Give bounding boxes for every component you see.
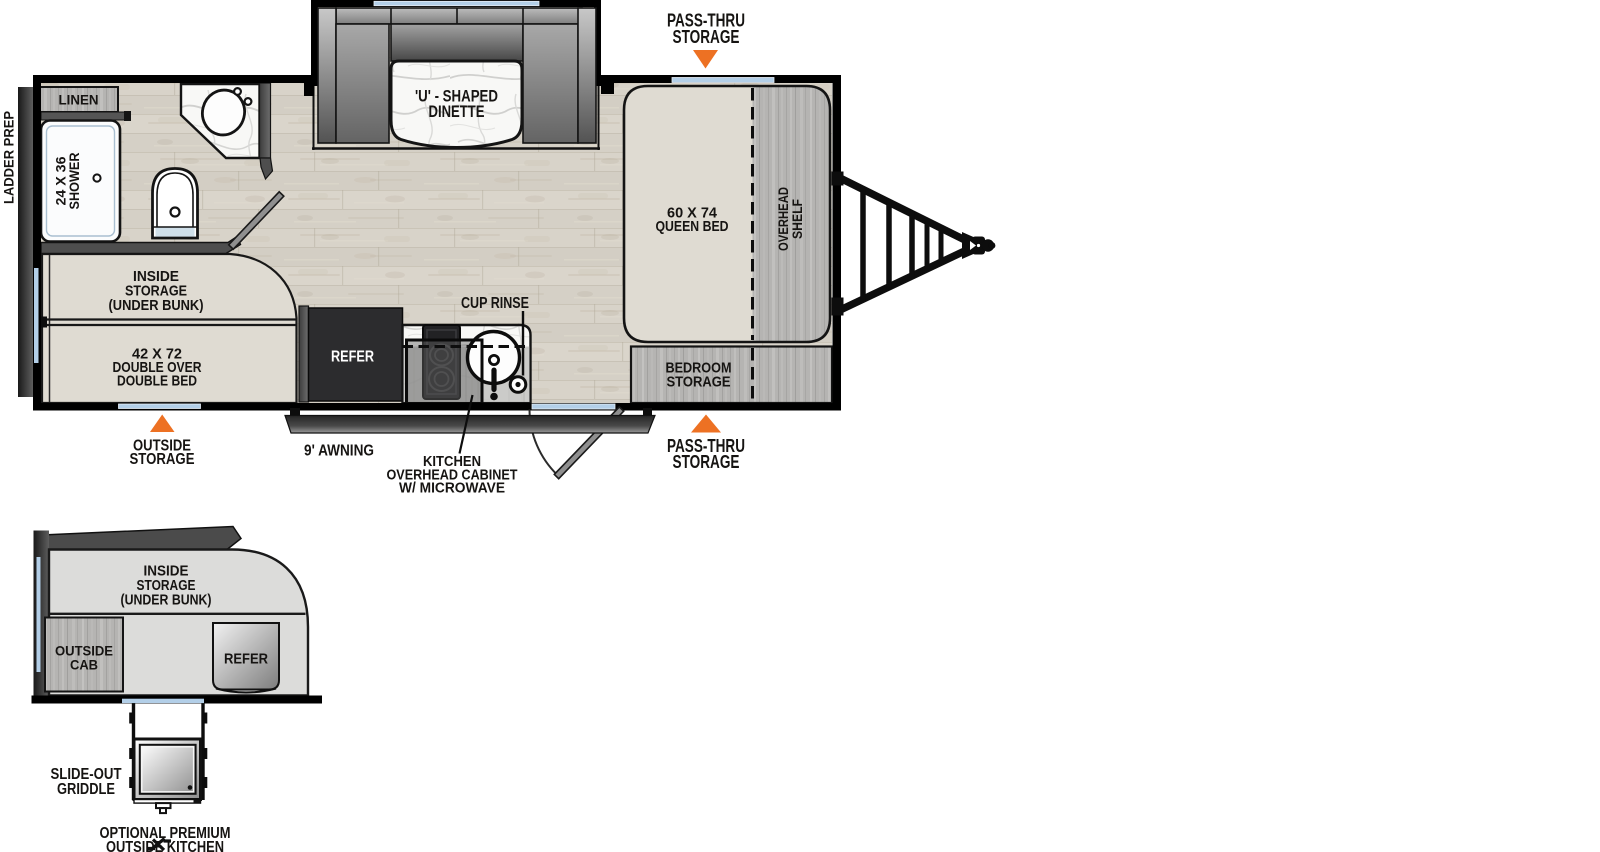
svg-text:DINETTE: DINETTE bbox=[429, 103, 485, 121]
svg-text:STORAGE: STORAGE bbox=[673, 452, 740, 472]
svg-text:SHOWER: SHOWER bbox=[67, 152, 82, 209]
svg-text:(UNDER BUNK): (UNDER BUNK) bbox=[109, 297, 204, 314]
svg-text:REFER: REFER bbox=[224, 651, 268, 668]
svg-text:GRIDDLE: GRIDDLE bbox=[57, 781, 115, 798]
svg-text:REFER: REFER bbox=[331, 349, 374, 366]
svg-text:CAB: CAB bbox=[70, 657, 98, 673]
svg-text:CUP RINSE: CUP RINSE bbox=[461, 295, 529, 312]
svg-text:STORAGE: STORAGE bbox=[130, 451, 195, 468]
svg-text:QUEEN BED: QUEEN BED bbox=[656, 218, 729, 235]
svg-text:9' AWNING: 9' AWNING bbox=[304, 443, 374, 460]
svg-text:LADDER PREP: LADDER PREP bbox=[2, 111, 17, 204]
svg-text:DOUBLE BED: DOUBLE BED bbox=[117, 373, 197, 390]
svg-text:SHELF: SHELF bbox=[789, 199, 805, 239]
svg-text:STORAGE: STORAGE bbox=[667, 374, 731, 391]
svg-text:W/ MICROWAVE: W/ MICROWAVE bbox=[399, 481, 505, 497]
svg-text:STORAGE: STORAGE bbox=[673, 27, 740, 47]
svg-text:(UNDER BUNK): (UNDER BUNK) bbox=[121, 593, 212, 609]
svg-text:LINEN: LINEN bbox=[59, 92, 99, 108]
